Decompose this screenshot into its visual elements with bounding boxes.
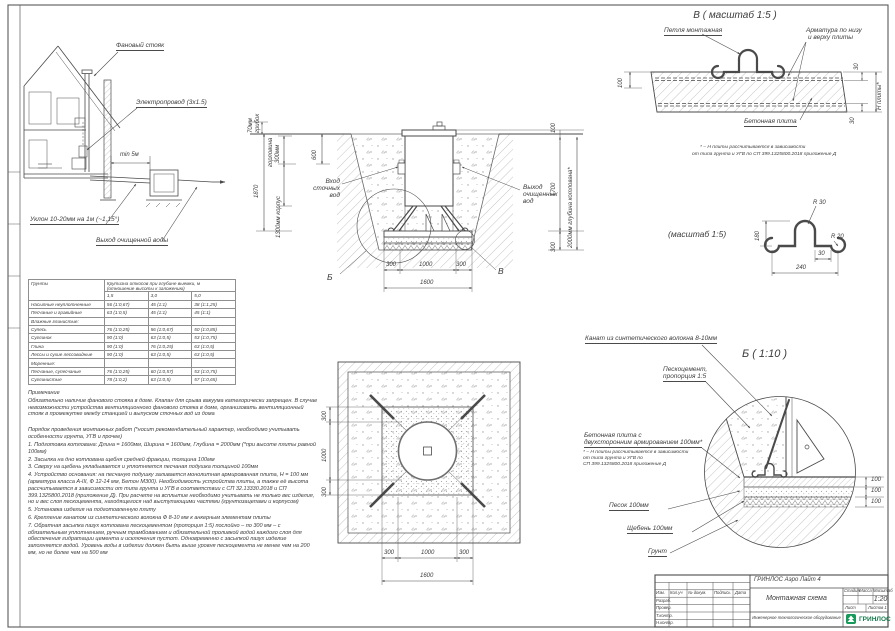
dim-bottom-300-right: 300 <box>456 262 466 269</box>
detail-b-dim-100-c: 100 <box>871 499 881 506</box>
dim-neck-line2: 300мм <box>275 145 282 163</box>
detail-b-footnote-3: СП 399.1325800.2018 приложение Д <box>583 462 666 468</box>
loop-detail-title: (масштаб 1:5) <box>668 229 726 239</box>
sheet-label: Лист <box>845 606 856 611</box>
slab-label-line2: двухсторонним армированием 100мм* <box>584 439 702 448</box>
notes-heading: Примечание <box>28 390 320 397</box>
house-section-drawing <box>24 46 225 241</box>
company-logo-icon <box>846 614 856 624</box>
slope-label: Уклон 10-20мм на 1м (~1,15°) <box>30 216 119 225</box>
detail-b-title: Б ( 1:10 ) <box>742 348 787 361</box>
scale-header: Масштаб <box>873 589 888 594</box>
drawing-sheet: Фановый стояк Электропровод (3х1.5) min … <box>0 0 895 631</box>
concrete-slab-label: Бетонная плита <box>744 118 797 127</box>
clean-water-outlet-label: Выход очищенной воды <box>96 237 168 246</box>
document-category: Инженерное технологическое оборудование <box>750 616 843 621</box>
loop-dim-30: 30 <box>818 251 825 258</box>
notes-item: 4. Устройство основания: на песчаную под… <box>28 472 320 506</box>
plan-dim-left-300b: 300 <box>322 487 329 497</box>
table-row: Песчаные, супесчаные76 (1:0,25)60 (1:0,5… <box>29 367 236 375</box>
sig-row-tcontrol: Т.контр. <box>656 614 673 619</box>
plan-dim-bottom-300b: 300 <box>459 550 469 557</box>
table-row: Насыпные неуплотненные56 (1:0,67)45 (1:1… <box>29 300 236 308</box>
detail-b-dim-100-b: 100 <box>871 488 881 495</box>
dim-bottom-300-left: 300 <box>386 262 396 269</box>
dim-bottom-1000: 1000 <box>419 262 432 269</box>
sandcement-label-line2: пропорция 1:5 <box>663 373 706 382</box>
table-row: Песчаные и гравийные63 (1:0,5)45 (1:1)45… <box>29 309 236 317</box>
notes-item: 7. Обратная засыпка пазух котлована песк… <box>28 523 320 557</box>
document-title: Монтажная схема <box>750 595 843 603</box>
min-distance-label: min 5м <box>120 152 139 159</box>
notes-item: 2. Засыпка на дно котлована щебня средне… <box>28 457 320 464</box>
callout-b-label: Б <box>327 272 333 282</box>
loop-r30: R 30 <box>813 200 826 207</box>
dim-100: 100 <box>551 123 558 133</box>
table-row: Моренные: <box>29 359 236 367</box>
sig-row-developed: Разраб. <box>656 599 671 604</box>
detail-v-footnote-2: от типа грунта и УГВ по СП 399.1325800.2… <box>692 152 836 158</box>
loop-r20: R 20 <box>831 234 844 241</box>
detail-v-dim-30-bottom: 30 <box>850 117 857 124</box>
mass-header: Масса <box>858 589 873 594</box>
soils-sub-50: 5,0 <box>192 292 236 300</box>
electric-wire-label: Электропровод (3х1.5) <box>136 99 207 108</box>
vent-stack-label: Фановый стояк <box>116 42 164 51</box>
detail-v-dim-h: Н плиты* <box>877 82 884 110</box>
table-row: Лессы и сухие лессовидные90 (1:0)63 (1:0… <box>29 351 236 359</box>
sand-layer-label: Песок 100мм <box>609 502 649 511</box>
table-row: Суглинок90 (1:0)63 (1:0,5)53 (1:0,75) <box>29 334 236 342</box>
dim-600: 600 <box>312 150 319 160</box>
soils-col-header: Грунты <box>29 280 105 301</box>
detail-v-drawing <box>624 34 882 120</box>
soils-main-header-2: (отношение высоты к заложению) <box>107 286 185 291</box>
sig-header-koluch: Кол.уч <box>670 591 683 596</box>
plan-dim-left-1000: 1000 <box>322 449 329 462</box>
plan-dim-bottom-1000: 1000 <box>421 550 434 557</box>
dim-bottom-1600: 1600 <box>420 280 433 287</box>
sig-row-checked: Провер. <box>656 606 672 611</box>
table-row: Суглинистые78 (1:0,2)63 (1:0,5)57 (1:0,6… <box>29 376 236 384</box>
soils-sub-15: 1,5 <box>104 292 148 300</box>
dim-pit-depth: 2000мм глубина котлована* <box>568 167 575 248</box>
company-logo-text: ГРИНЛОС <box>859 616 891 623</box>
loop-dim-240: 240 <box>796 265 806 272</box>
plan-dim-bottom-1600: 1600 <box>420 573 433 580</box>
sig-header-docnum: № докум. <box>688 591 706 596</box>
mounting-loop-label: Петля монтажная <box>664 27 722 36</box>
dim-total-height: 1870 <box>254 185 261 198</box>
pit-cross-section-drawing <box>250 122 584 292</box>
product-name: ГРИНЛОС Аэро Лайт 4 <box>754 577 821 584</box>
sig-row-ncontrol: Н.контр. <box>656 621 674 626</box>
notes-item: 5. Установка изделия на подготовленную п… <box>28 507 320 514</box>
detail-v-footnote-1: * – Н плиты рассчитывается в зависимости <box>700 145 805 151</box>
inlet-label-line3: вод <box>300 192 340 200</box>
plan-dim-left-300a: 300 <box>322 411 329 421</box>
table-row: Влажные глинистые: <box>29 317 236 325</box>
callout-v-label: В <box>498 266 504 276</box>
detail-b-dim-100-a: 100 <box>871 477 881 484</box>
dim-300-right: 300 <box>551 242 558 252</box>
detail-b-footnote-1: * – Н плиты рассчитывается в зависимости <box>583 450 688 456</box>
sig-header-date: Дата <box>735 591 746 596</box>
notes-paragraph-2: Порядок проведения монтажных работ (*нос… <box>28 427 320 441</box>
outlet-label-line3: вод <box>523 198 533 206</box>
soil-label: Грунт <box>648 548 667 557</box>
sig-header-signature: Подпись <box>714 591 731 596</box>
gravel-layer-label: Щебень 100мм <box>627 525 673 534</box>
notes-item: 3. Сверху на щебень укладывается и уплот… <box>28 464 320 471</box>
soils-sub-30: 3,0 <box>148 292 192 300</box>
detail-v-title: В ( масштаб 1:5 ) <box>660 10 810 22</box>
loop-dim-180: 180 <box>755 231 762 241</box>
detail-b-footnote-2: от типа грунта и УГВ по <box>583 456 643 462</box>
sheets-label: Листов 1 <box>868 606 887 611</box>
rope-label: Канат из синтетического волокна 8-10мм <box>585 335 717 344</box>
stage-header: Стадия <box>844 589 858 594</box>
detail-v-dim-100: 100 <box>618 78 625 88</box>
notes-paragraph-1: Обязательно наличие фанового стояка в до… <box>28 398 320 418</box>
notes-item: 1. Подготовка котлована: Длина = 1600мм,… <box>28 442 320 456</box>
table-row: Супесь76 (1:0,25)56 (1:0,67)50 (1:0,85) <box>29 325 236 333</box>
dim-body-height: 1300мм корпус <box>276 196 283 238</box>
detail-v-dim-30-top: 30 <box>854 63 861 70</box>
table-row: Глина90 (1:0)76 (1:0,25)63 (1:0,5) <box>29 342 236 350</box>
notes-item: 6. Крепление канатом из синтетического в… <box>28 515 320 522</box>
plan-dim-bottom-300a: 300 <box>384 550 394 557</box>
dim-cap-line2: грибок <box>255 114 262 133</box>
installation-notes: Примечание Обязательно наличие фанового … <box>28 390 320 558</box>
soil-slopes-table: Грунты Крутизна откосов при глубине выем… <box>28 279 236 385</box>
sig-header-izm: Изм. <box>656 591 665 596</box>
rebar-label-line2: и верху плиты <box>808 34 853 42</box>
scale-value: 1:20 <box>873 596 888 604</box>
